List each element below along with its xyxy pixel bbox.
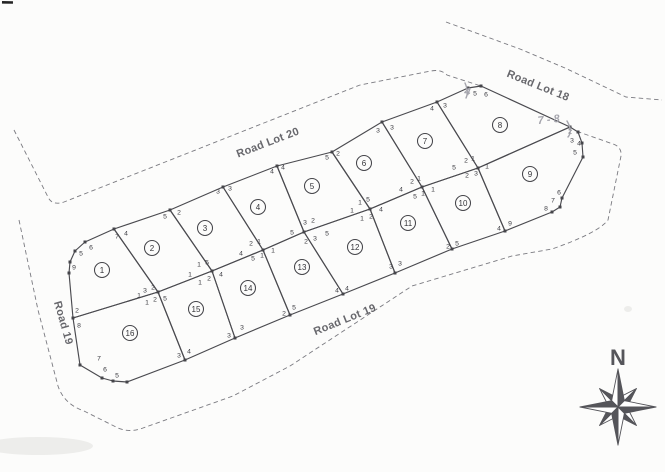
- corner-number: 1: [145, 300, 149, 307]
- corner-number: 3: [216, 189, 220, 196]
- lot-number: 12: [351, 243, 360, 252]
- corner-number: 2: [465, 173, 469, 180]
- lot-13-boundary: [263, 232, 343, 315]
- corner-number: 1: [271, 248, 275, 255]
- lot-14-boundary: [212, 250, 290, 338]
- corner-dot: [477, 167, 480, 170]
- corner-point-numbers: 6597452334452334356234567849253344253334…: [72, 91, 581, 380]
- lot-number: 1: [100, 266, 105, 275]
- corner-number: 1: [417, 176, 421, 183]
- corner-number: 2: [311, 218, 315, 225]
- corner-dot: [436, 101, 439, 104]
- corner-number: 2: [446, 244, 450, 251]
- corner-number: 7: [551, 198, 555, 205]
- corner-number: 6: [484, 92, 488, 99]
- subdivision-plat-map: 6597452334452334356234567849253344253334…: [0, 0, 665, 472]
- lot-number: 11: [404, 219, 413, 228]
- corner-number: 4: [379, 207, 383, 214]
- corner-number: 5: [115, 373, 119, 380]
- corner-dot: [262, 249, 265, 252]
- lot-number: 5: [310, 182, 315, 191]
- lot-number: 3: [203, 224, 208, 233]
- corner-number: 4: [430, 106, 434, 113]
- corner-dot: [551, 211, 554, 214]
- corner-dot: [394, 272, 397, 275]
- corner-dot: [69, 261, 72, 264]
- corner-number: 5: [79, 251, 83, 258]
- corner-number: 1: [197, 262, 201, 269]
- corner-dot: [577, 131, 580, 134]
- road-19-label: Road 19: [51, 300, 75, 346]
- corner-number: 5: [163, 296, 167, 303]
- lot-4-marker: 4: [251, 200, 266, 215]
- lot-1-marker: 1: [95, 263, 110, 278]
- lot-number: 6: [362, 159, 367, 168]
- corner-dot: [112, 380, 115, 383]
- lot-16-marker: 16: [123, 326, 138, 341]
- corner-number: 2: [464, 158, 468, 165]
- corner-number: 5: [163, 214, 167, 221]
- corner-number: 4: [335, 288, 339, 295]
- corner-dot: [331, 151, 334, 154]
- corner-dot: [169, 209, 172, 212]
- corner-number: 3: [177, 353, 181, 360]
- corner-number: 3: [390, 125, 394, 132]
- lot-12-marker: 12: [348, 240, 363, 255]
- corner-dot: [234, 337, 237, 340]
- corner-dot: [421, 186, 424, 189]
- corner-dot: [184, 359, 187, 362]
- corner-number: 3: [376, 128, 380, 135]
- corner-number: 1: [421, 191, 425, 198]
- lot-14-marker: 14: [241, 281, 256, 296]
- corner-number: 3: [389, 264, 393, 271]
- corner-number: 9: [508, 221, 512, 228]
- corner-number: 5: [205, 260, 209, 267]
- corner-number: 3: [570, 138, 574, 145]
- corner-number: 3: [398, 261, 402, 268]
- corner-number: 5: [455, 241, 459, 248]
- corner-dot: [369, 208, 372, 211]
- corner-number: 1: [358, 200, 362, 207]
- corner-number: 3: [313, 236, 317, 243]
- corner-number: 9: [72, 265, 76, 272]
- lot-number: 13: [298, 263, 307, 272]
- lot-8-marker: 8: [493, 118, 508, 133]
- corner-number: 1: [257, 239, 261, 246]
- corner-number: 2: [153, 297, 157, 304]
- corner-dot: [581, 142, 584, 145]
- corner-number: 4: [577, 141, 581, 148]
- corner-dot: [582, 156, 585, 159]
- corner-dot: [504, 230, 507, 233]
- corner-number: 8: [544, 206, 548, 213]
- compass-north-label: N: [610, 345, 626, 370]
- lot-number: 8: [498, 121, 503, 130]
- corner-number: 5: [251, 256, 255, 263]
- lot-number-markers: 12345678910111213141516: [95, 118, 538, 341]
- corner-dot: [101, 377, 104, 380]
- corner-number: 3: [303, 220, 307, 227]
- corner-number: 1: [471, 156, 475, 163]
- corner-number: 7: [115, 234, 119, 241]
- corner-number: 5: [473, 91, 477, 98]
- corner-number: 2: [282, 311, 286, 318]
- scan-edge-mark: [2, 1, 13, 4]
- corner-number: 2: [369, 214, 373, 221]
- compass-point-light-half: [618, 407, 624, 445]
- corner-number: 7: [97, 356, 101, 363]
- lot-number: 9: [528, 170, 533, 179]
- lot-number: 7: [423, 137, 428, 146]
- corner-dot: [74, 250, 77, 253]
- corner-dot: [289, 314, 292, 317]
- compass-rose: N: [580, 345, 656, 445]
- corner-number: 6: [557, 190, 561, 197]
- corner-number: 1: [198, 280, 202, 287]
- corner-dot: [84, 241, 87, 244]
- corner-number: 2: [410, 179, 414, 186]
- lot-11-marker: 11: [401, 216, 416, 231]
- compass-point-light-half: [618, 401, 656, 407]
- compass-star-icon: [580, 369, 656, 445]
- corner-dot: [342, 293, 345, 296]
- corner-dot: [303, 231, 306, 234]
- corner-number: 6: [89, 245, 93, 252]
- lot-number: 15: [192, 305, 201, 314]
- corner-dot: [381, 121, 384, 124]
- corner-number: 1: [260, 253, 264, 260]
- corner-number: 2: [151, 285, 155, 292]
- corner-dot: [126, 381, 129, 384]
- lot-number: 2: [150, 244, 155, 253]
- corner-number: 4: [399, 187, 403, 194]
- corner-number: 1: [137, 293, 141, 300]
- corner-number: 5: [452, 165, 456, 172]
- corner-number: 5: [292, 305, 296, 312]
- corner-dot: [79, 364, 82, 367]
- lot-2-marker: 2: [145, 241, 160, 256]
- corner-number: 3: [443, 103, 447, 110]
- lot-13-marker: 13: [295, 260, 310, 275]
- corner-number: 6: [103, 367, 107, 374]
- lot-9-boundary: [478, 127, 583, 231]
- scan-speck: [624, 306, 632, 312]
- corner-number: 1: [360, 216, 364, 223]
- corner-number: 1: [188, 272, 192, 279]
- corner-number: 4: [270, 169, 274, 176]
- corner-number: 3: [240, 325, 244, 332]
- lot-5-marker: 5: [305, 179, 320, 194]
- corner-number: 2: [304, 239, 308, 246]
- lot-number: 14: [244, 284, 253, 293]
- corner-number: 3: [227, 333, 231, 340]
- corner-dot: [276, 165, 279, 168]
- road-boundaries-dashed: [14, 22, 662, 431]
- corner-dot: [222, 186, 225, 189]
- corner-number: 4: [497, 226, 501, 233]
- lot-10-marker: 10: [456, 196, 471, 211]
- corner-dot: [451, 248, 454, 251]
- corner-number: 5: [413, 194, 417, 201]
- lot-15-marker: 15: [189, 302, 204, 317]
- road-lot-19-label: Road Lot 19: [312, 302, 378, 338]
- corner-number: 1: [350, 208, 354, 215]
- corner-number: 3: [474, 171, 478, 178]
- corner-dot: [113, 228, 116, 231]
- corner-number: 4: [239, 251, 243, 258]
- corner-dot: [561, 197, 564, 200]
- scanned-plat-page: 6597452334452334356234567849253344253334…: [0, 0, 665, 472]
- corner-number: 1: [485, 164, 489, 171]
- corner-number: 4: [124, 231, 128, 238]
- lot-7-marker: 7: [418, 134, 433, 149]
- corner-number: 5: [290, 230, 294, 237]
- corner-number: 4: [187, 349, 191, 356]
- lot-number: 10: [459, 199, 468, 208]
- lot-number: 4: [256, 203, 261, 212]
- corner-number: 5: [325, 155, 329, 162]
- lot-9-marker: 9: [523, 167, 538, 182]
- compass-point-light-half: [580, 407, 618, 413]
- pencil-note: 4: [463, 86, 472, 99]
- corner-dot: [72, 317, 75, 320]
- lot-3-marker: 3: [198, 221, 213, 236]
- lot-6-marker: 6: [357, 156, 372, 171]
- corner-number: 4: [345, 286, 349, 293]
- corner-dot: [157, 291, 160, 294]
- lot-10-boundary: [422, 168, 505, 249]
- corner-number: 3: [228, 186, 232, 193]
- corner-number: 2: [177, 210, 181, 217]
- corner-dot: [211, 270, 214, 273]
- corner-number: 3: [143, 288, 147, 295]
- lot-8-boundary: [437, 86, 570, 168]
- corner-number: 5: [573, 150, 577, 157]
- corner-dot: [68, 272, 71, 275]
- corner-number: 5: [366, 197, 370, 204]
- corner-dot: [480, 85, 483, 88]
- compass-point-dark-half: [580, 401, 618, 407]
- corner-number: 4: [219, 272, 223, 279]
- corner-number: 8: [77, 323, 81, 330]
- corner-number: 2: [75, 308, 79, 315]
- corner-number: 1: [431, 187, 435, 194]
- road-labels: Road Lot 20Road Lot 18Road 19Road Lot 19: [51, 68, 571, 346]
- lot-number: 16: [126, 329, 135, 338]
- corner-number: 2: [336, 151, 340, 158]
- corner-number: 4: [281, 165, 285, 172]
- corner-number: 5: [325, 231, 329, 238]
- lot-15-boundary: [158, 271, 235, 360]
- corner-dot: [559, 206, 562, 209]
- pencil-note: 7 - 8: [537, 113, 561, 127]
- corner-number: 2: [249, 241, 253, 248]
- road-lot-18-label: Road Lot 18: [505, 68, 571, 104]
- corner-number: 2: [207, 276, 211, 283]
- scan-smudge: [0, 437, 93, 455]
